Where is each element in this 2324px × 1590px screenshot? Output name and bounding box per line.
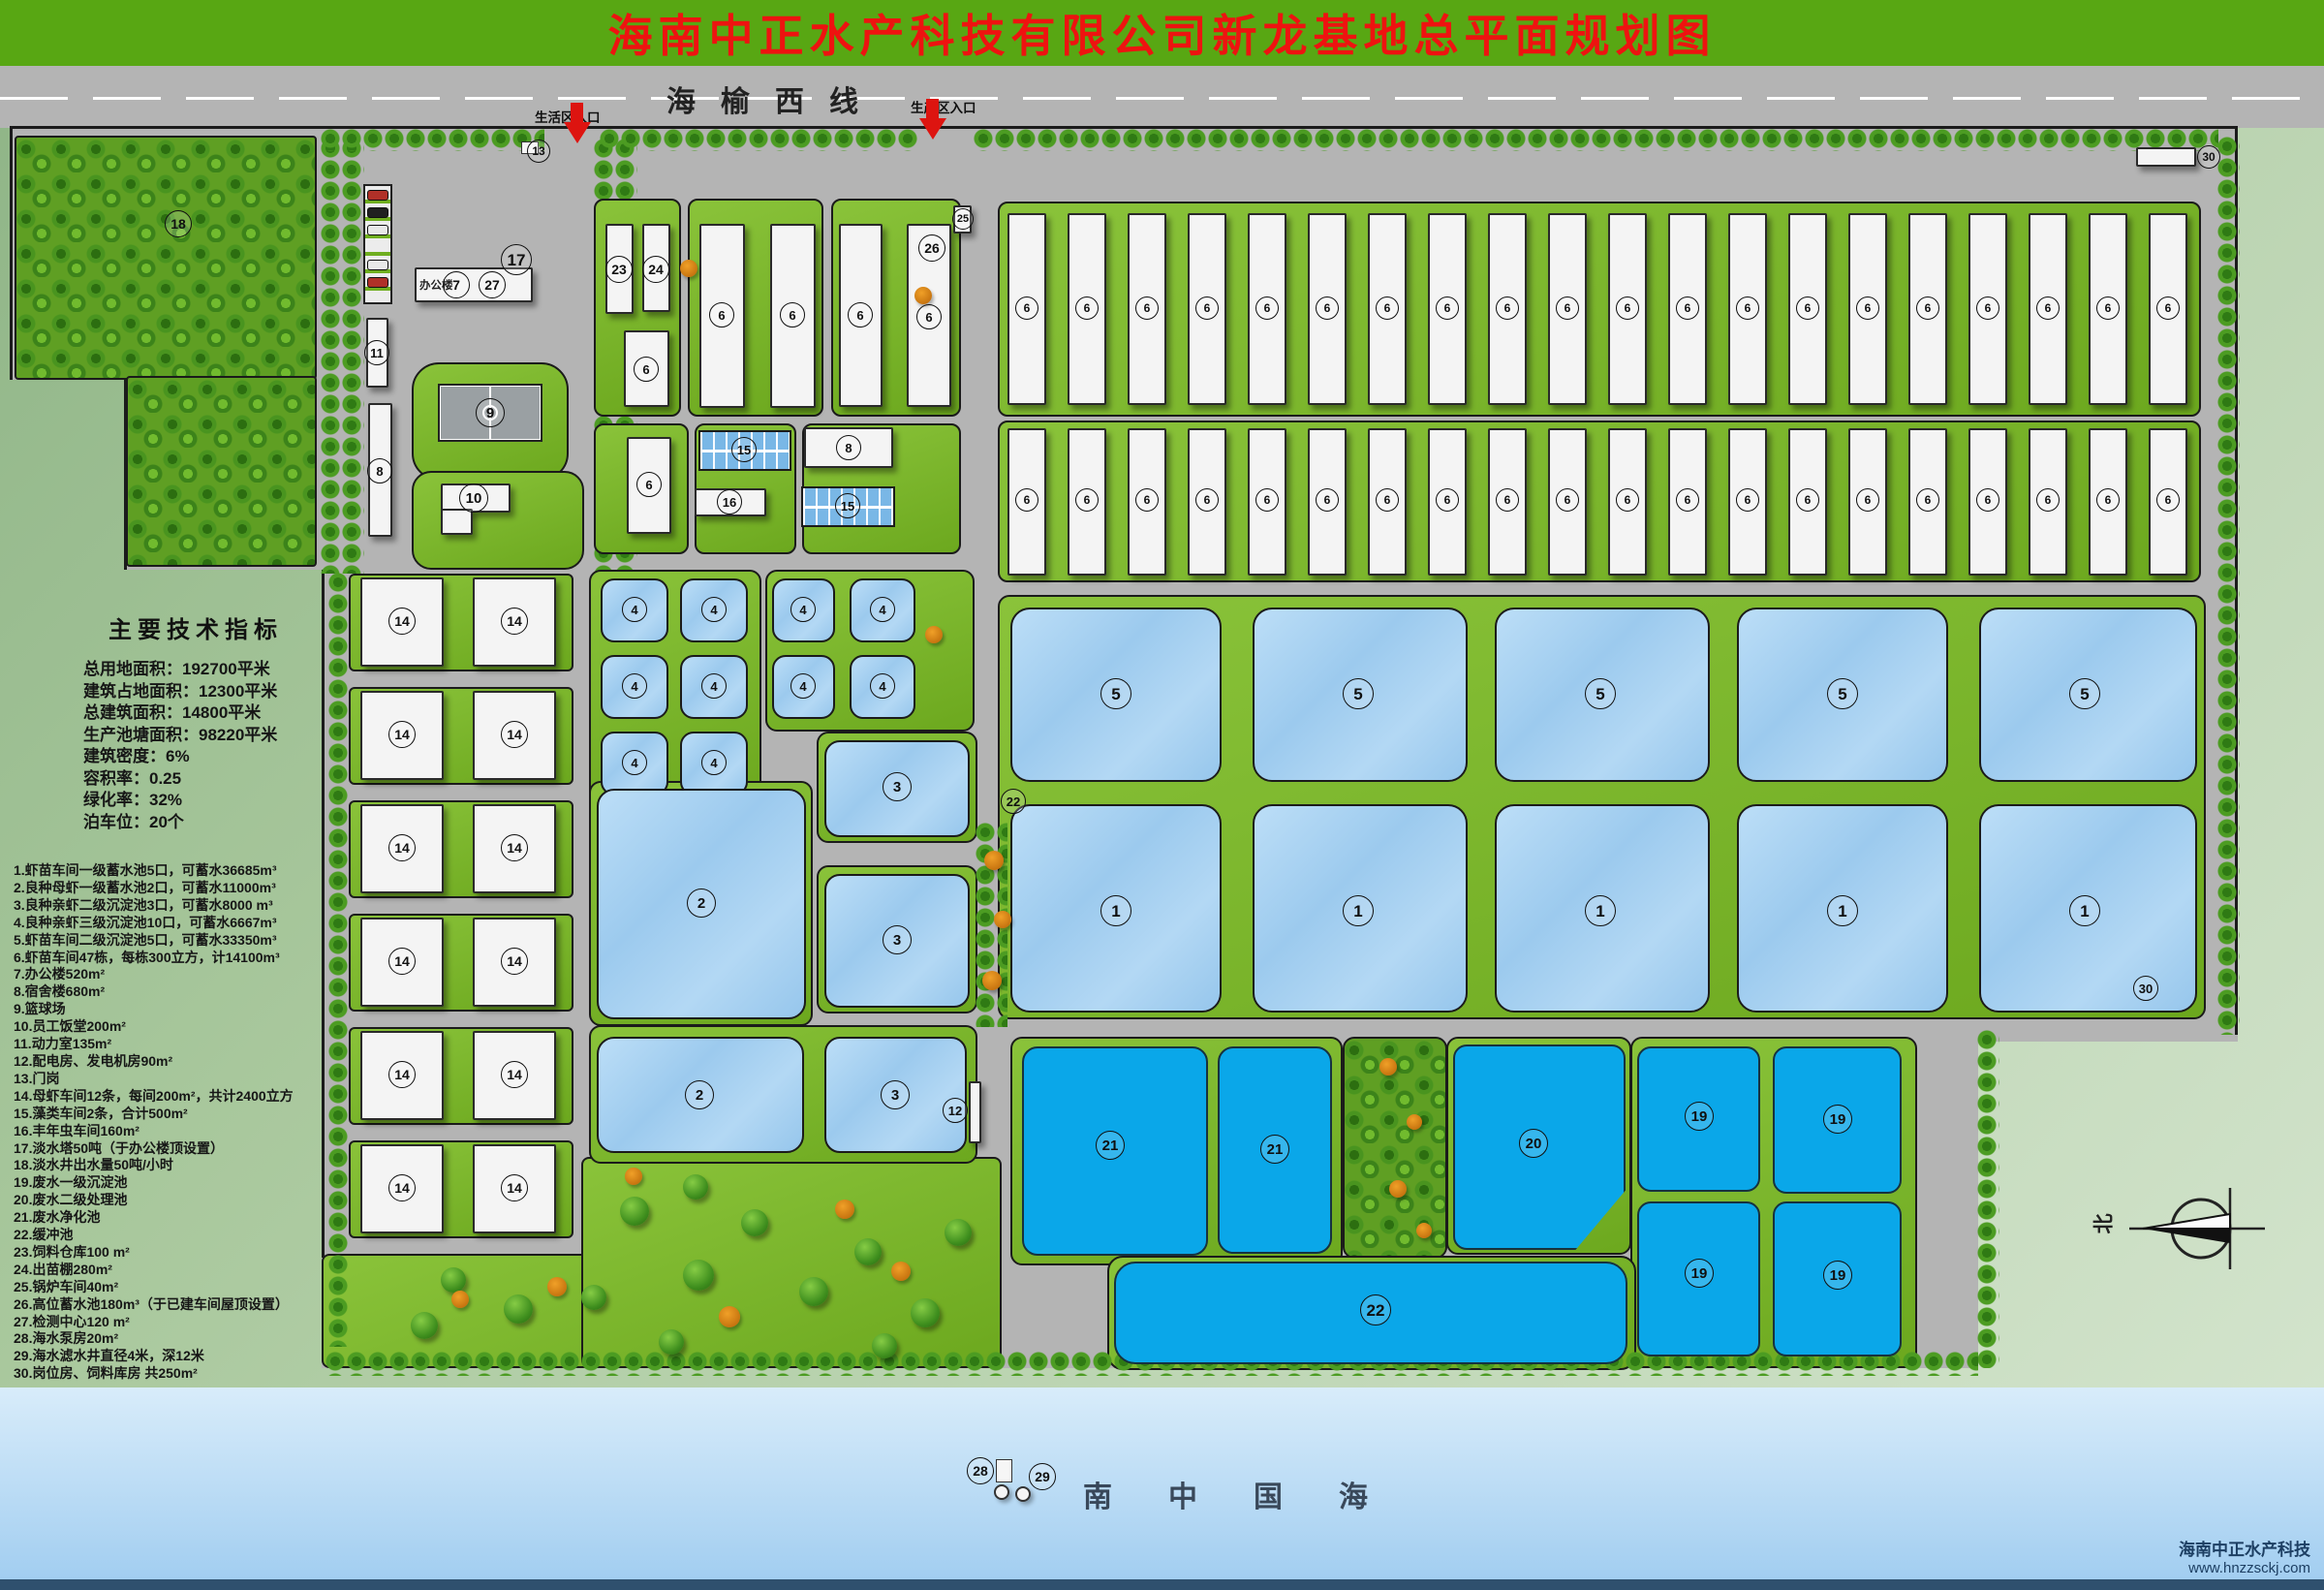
list-line: 3.良种亲虾二级沉淀池3口，可蓄水8000 m³ (14, 897, 294, 915)
list-line: 6.虾苗车间47栋，每栋300立方，计14100m³ (14, 950, 294, 967)
marker-25: 25 (952, 208, 974, 230)
bush (680, 260, 697, 277)
bush (982, 971, 1002, 990)
marker-5: 5 (1100, 678, 1131, 709)
tree (872, 1333, 897, 1358)
car (367, 190, 388, 201)
list-line: 4.良种亲虾三级沉淀池10口，可蓄水6667m³ (14, 915, 294, 932)
car (367, 207, 388, 218)
tree (683, 1260, 714, 1291)
legend-list: 1.虾苗车间一级蓄水池5口，可蓄水36685m³2.良种母虾一级蓄水池2口，可蓄… (14, 862, 294, 1383)
tree (441, 1267, 466, 1293)
marker-14: 14 (388, 721, 416, 748)
marker-4: 4 (622, 673, 647, 699)
marker-19: 19 (1685, 1259, 1714, 1288)
tree (945, 1219, 972, 1246)
marker-5: 5 (1343, 678, 1374, 709)
bush (1407, 1114, 1422, 1130)
marker-19: 19 (1823, 1105, 1852, 1134)
bush (984, 851, 1004, 870)
site-boundary (10, 126, 13, 380)
marker-6: 6 (1616, 488, 1639, 512)
list-line: 建筑密度：6% (83, 746, 277, 768)
marker-6: 6 (2096, 488, 2120, 512)
marker-6: 6 (2156, 488, 2180, 512)
marker-11: 11 (364, 340, 389, 365)
marker-6: 6 (1436, 296, 1459, 320)
marker-14: 14 (388, 1061, 416, 1088)
marker-4: 4 (622, 750, 647, 775)
list-line: 10.员工饭堂200m² (14, 1018, 294, 1036)
marker-21: 21 (1096, 1131, 1125, 1160)
compass-north-label: 北 (2089, 1214, 2118, 1234)
east-edge-trees (2216, 136, 2240, 1035)
marker-4: 4 (701, 750, 727, 775)
seawater-pump-house-28 (996, 1459, 1012, 1482)
marker-3: 3 (883, 772, 912, 801)
marker-6: 6 (1976, 488, 1999, 512)
tree (620, 1197, 649, 1226)
entrance-arrow-head (564, 122, 591, 143)
northwest-forest (15, 136, 317, 380)
marker-6: 6 (1556, 296, 1579, 320)
marker-6: 6 (916, 304, 942, 329)
bush (925, 626, 943, 643)
marker-6: 6 (780, 302, 805, 327)
marker-5: 5 (1827, 678, 1858, 709)
tree (581, 1285, 606, 1310)
marker-1: 1 (2069, 895, 2100, 926)
marker-1: 1 (1827, 895, 1858, 926)
marker-13: 13 (527, 140, 550, 163)
list-line: 总建筑面积：14800平米 (83, 702, 277, 725)
marker-6: 6 (1676, 488, 1699, 512)
marker-3: 3 (883, 925, 912, 954)
bush (451, 1291, 469, 1308)
marker-6: 6 (1376, 488, 1399, 512)
tree (683, 1174, 708, 1200)
car (367, 225, 388, 235)
life-zone-west-trees (320, 138, 364, 574)
list-line: 20.废水二级处理池 (14, 1192, 294, 1209)
workshops-row-1 (998, 202, 2201, 417)
marker-26: 26 (918, 234, 945, 262)
marker-4: 4 (790, 673, 816, 699)
compass-icon (2122, 1184, 2267, 1271)
marker-4: 4 (622, 597, 647, 622)
site-boundary (322, 570, 325, 1258)
list-line: 25.锅炉车间40m² (14, 1279, 294, 1296)
watermark-url: www.hnzzsckj.com (2179, 1560, 2310, 1576)
marker-3: 3 (881, 1080, 910, 1109)
office-label: 办公楼 (419, 277, 453, 293)
marker-5: 5 (1585, 678, 1616, 709)
list-line: 26.高位蓄水池180m³（于已建车间屋顶设置） (14, 1296, 294, 1314)
marker-6: 6 (1496, 296, 1519, 320)
marker-5: 5 (2069, 678, 2100, 709)
marker-6: 6 (1976, 296, 1999, 320)
marker-15: 15 (835, 493, 860, 518)
site-plan-canvas: 海南中正水产科技有限公司新龙基地总平面规划图 海榆西线 生活区入口 生产区入口 … (0, 0, 2324, 1590)
seawater-filter-well-29 (1015, 1486, 1031, 1502)
marker-6: 6 (1015, 488, 1038, 512)
tree (799, 1277, 828, 1306)
marker-2: 2 (685, 1080, 714, 1109)
list-line: 21.废水净化池 (14, 1209, 294, 1227)
marker-29: 29 (1029, 1463, 1056, 1490)
list-line: 13.门岗 (14, 1071, 294, 1088)
marker-2: 2 (687, 889, 716, 918)
marker-6: 6 (2036, 296, 2060, 320)
marker-15: 15 (731, 437, 757, 462)
tree (854, 1238, 882, 1265)
list-line: 27.检测中心120 m² (14, 1314, 294, 1331)
marker-18: 18 (165, 210, 192, 237)
tree (411, 1312, 438, 1339)
marker-4: 4 (870, 673, 895, 699)
marker-14: 14 (501, 608, 528, 635)
marker-6: 6 (1436, 488, 1459, 512)
marker-14: 14 (501, 1174, 528, 1201)
marker-6: 6 (1376, 296, 1399, 320)
watermark-company: 海南中正水产科技 (2179, 1536, 2310, 1560)
entrance-arrow (571, 103, 583, 122)
marker-4: 4 (701, 673, 727, 699)
marker-6: 6 (2096, 296, 2120, 320)
southwest-green (581, 1157, 1002, 1368)
marker-9: 9 (476, 398, 505, 427)
roadside-trees (973, 128, 2218, 151)
marker-6: 6 (1556, 488, 1579, 512)
bush (625, 1168, 642, 1185)
list-line: 22.缓冲池 (14, 1227, 294, 1244)
marker-6: 6 (1195, 488, 1219, 512)
bush (1389, 1180, 1407, 1198)
list-line: 7.办公楼520m² (14, 966, 294, 983)
marker-6: 6 (1135, 296, 1159, 320)
marker-1: 1 (1343, 895, 1374, 926)
seawater-filter-well-29 (994, 1484, 1009, 1500)
marker-17: 17 (501, 244, 532, 275)
list-line: 容积率：0.25 (83, 768, 277, 791)
list-line: 生产池塘面积：98220平米 (83, 725, 277, 747)
list-line: 1.虾苗车间一级蓄水池5口，可蓄水36685m³ (14, 862, 294, 880)
map-layer: 1813177271189102324666662625615816156666… (0, 0, 2324, 1590)
marker-4: 4 (790, 597, 816, 622)
list-line: 8.宿舍楼680m² (14, 983, 294, 1001)
list-line: 11.动力室135m² (14, 1036, 294, 1053)
marker-6: 6 (1616, 296, 1639, 320)
list-line: 9.篮球场 (14, 1001, 294, 1018)
car (367, 260, 388, 270)
marker-8: 8 (367, 458, 392, 483)
list-line: 17.淡水塔50吨（于办公楼顶设置） (14, 1140, 294, 1158)
marker-14: 14 (501, 948, 528, 975)
marker-19: 19 (1685, 1102, 1714, 1131)
list-line: 5.虾苗车间二级沉淀池5口，可蓄水33350m³ (14, 932, 294, 950)
marker-4: 4 (701, 597, 727, 622)
marker-14: 14 (388, 608, 416, 635)
marker-6: 6 (1736, 488, 1759, 512)
car (367, 277, 388, 288)
tree (504, 1294, 533, 1324)
list-line: 16.丰年虫车间160m² (14, 1123, 294, 1140)
watermark: 海南中正水产科技 www.hnzzsckj.com (2179, 1536, 2310, 1576)
marker-22: 22 (1001, 789, 1026, 814)
marker-16: 16 (717, 489, 742, 514)
marker-14: 14 (388, 834, 416, 861)
entrance-arrow (926, 99, 939, 118)
bush (1379, 1058, 1397, 1076)
roadside-trees (599, 128, 918, 151)
marker-6: 6 (1916, 488, 1939, 512)
marker-6: 6 (636, 472, 662, 497)
marker-21: 21 (1260, 1135, 1289, 1164)
marker-24: 24 (642, 256, 669, 283)
marker-6: 6 (1255, 488, 1279, 512)
list-line: 30.岗位房、饲料库房 共250m² (14, 1365, 294, 1383)
tech-panel-title: 主要技术指标 (108, 610, 283, 644)
west-road-trees (327, 572, 349, 1347)
marker-6: 6 (1316, 488, 1339, 512)
marker-19: 19 (1823, 1261, 1852, 1290)
workshops-row-2 (998, 421, 2201, 582)
tree (741, 1209, 768, 1236)
marker-20: 20 (1519, 1129, 1548, 1158)
marker-22: 22 (1360, 1294, 1391, 1325)
marker-30: 30 (2197, 145, 2220, 169)
southeast-trees (1976, 1029, 1999, 1368)
bush (835, 1200, 854, 1219)
marker-6: 6 (1736, 296, 1759, 320)
marker-6: 6 (1796, 488, 1819, 512)
list-line: 24.出苗棚280m² (14, 1262, 294, 1279)
generator-room-12 (969, 1081, 981, 1143)
list-line: 28.海水泵房20m² (14, 1330, 294, 1348)
list-line: 12.配电房、发电机房90m² (14, 1053, 294, 1071)
list-line: 19.废水一级沉淀池 (14, 1174, 294, 1192)
bush (994, 911, 1011, 928)
marker-4: 4 (870, 597, 895, 622)
marker-6: 6 (1796, 296, 1819, 320)
bush (547, 1277, 567, 1296)
bush (1416, 1223, 1432, 1238)
list-line: 14.母虾车间12条，每间200m²，共计2400立方 (14, 1088, 294, 1106)
marker-14: 14 (501, 721, 528, 748)
marker-6: 6 (1676, 296, 1699, 320)
list-line: 2.良种母虾一级蓄水池2口，可蓄水11000m³ (14, 880, 294, 897)
marker-6: 6 (1075, 488, 1099, 512)
marker-6: 6 (1195, 296, 1219, 320)
marker-6: 6 (1135, 488, 1159, 512)
marker-6: 6 (1075, 296, 1099, 320)
marker-14: 14 (501, 1061, 528, 1088)
marker-6: 6 (2156, 296, 2180, 320)
marker-6: 6 (1496, 488, 1519, 512)
tree (659, 1329, 684, 1355)
marker-1: 1 (1585, 895, 1616, 926)
post-feed-store-30 (2136, 147, 2196, 167)
bush (914, 287, 932, 304)
list-line: 建筑占地面积：12300平米 (83, 681, 277, 703)
marker-30: 30 (2133, 976, 2158, 1001)
marker-6: 6 (2036, 488, 2060, 512)
marker-6: 6 (709, 302, 734, 327)
marker-28: 28 (967, 1457, 994, 1484)
marker-6: 6 (1015, 296, 1038, 320)
list-line: 绿化率：32% (83, 790, 277, 812)
bush (719, 1306, 740, 1327)
marker-14: 14 (501, 834, 528, 861)
entrance-arrow-head (919, 118, 946, 140)
marker-6: 6 (1916, 296, 1939, 320)
marker-27: 27 (479, 271, 506, 298)
marker-6: 6 (1255, 296, 1279, 320)
marker-6: 6 (1856, 488, 1879, 512)
list-line: 18.淡水井出水量50吨/小时 (14, 1157, 294, 1174)
list-line: 泊车位：20个 (83, 812, 277, 834)
marker-8: 8 (836, 435, 861, 460)
marker-14: 14 (388, 1174, 416, 1201)
marker-6: 6 (634, 357, 659, 382)
west-forest (126, 376, 317, 567)
marker-14: 14 (388, 948, 416, 975)
marker-6: 6 (848, 302, 873, 327)
marker-6: 6 (1856, 296, 1879, 320)
tech-panel-lines: 总用地面积：192700平米建筑占地面积：12300平米总建筑面积：14800平… (83, 659, 277, 833)
marker-6: 6 (1316, 296, 1339, 320)
marker-10: 10 (459, 483, 488, 513)
marker-23: 23 (605, 256, 633, 283)
tree (911, 1298, 940, 1327)
roadside-trees (320, 128, 544, 151)
list-line: 29.海水滤水井直径4米，深12米 (14, 1348, 294, 1365)
marker-12: 12 (943, 1098, 968, 1123)
bush (891, 1262, 911, 1281)
list-line: 15.藻类车间2条，合计500m² (14, 1106, 294, 1123)
list-line: 23.饲料仓库100 m² (14, 1244, 294, 1262)
canteen-wing (441, 509, 473, 535)
list-line: 总用地面积：192700平米 (83, 659, 277, 681)
marker-1: 1 (1100, 895, 1131, 926)
